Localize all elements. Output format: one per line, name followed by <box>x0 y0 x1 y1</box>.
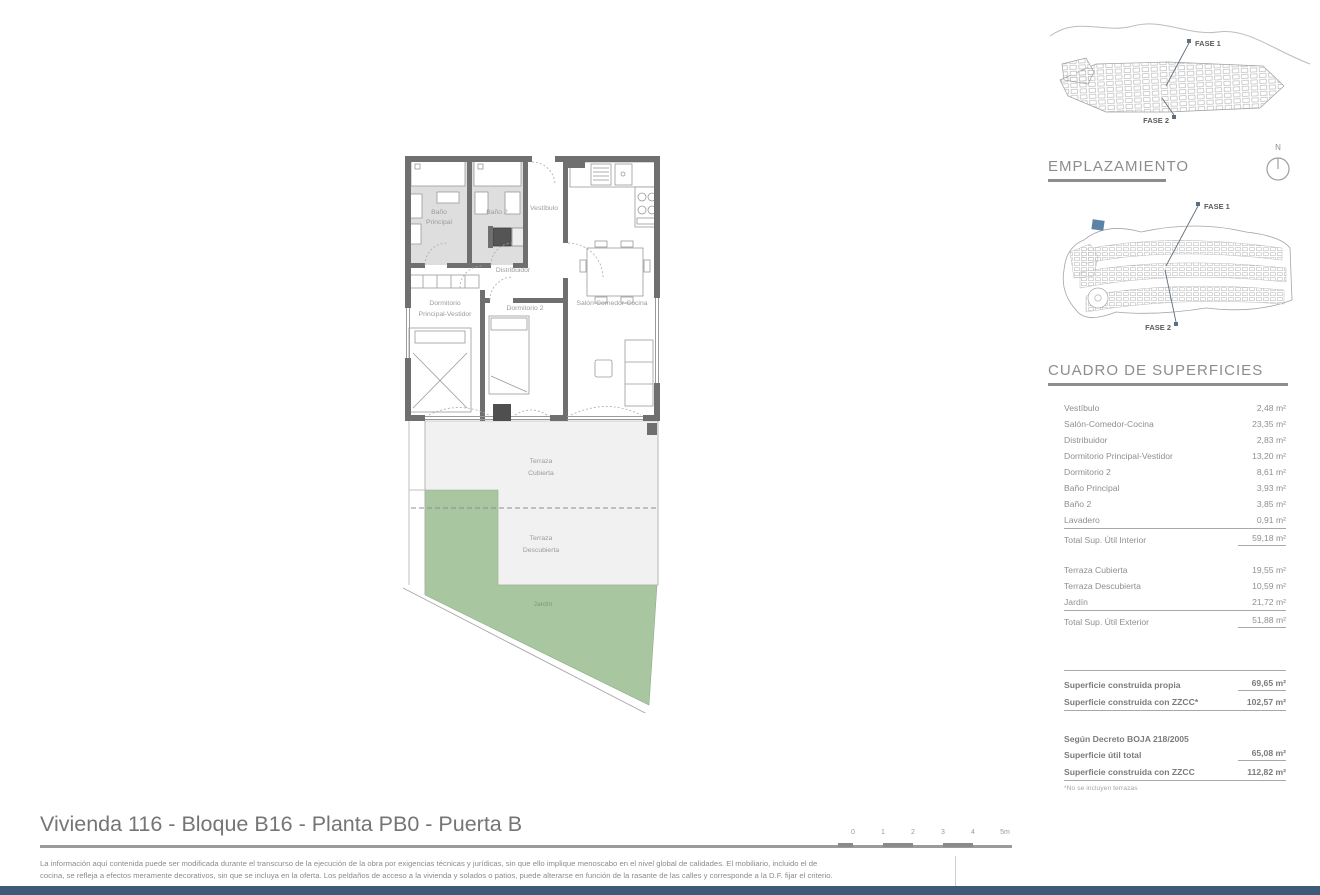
table-footnote: *No se incluyen terrazas <box>1064 785 1286 792</box>
fase1-label: FASE 1 <box>1195 39 1221 48</box>
svg-text:Descubierta: Descubierta <box>523 547 559 554</box>
room-label-distribuidor: Distribuidor <box>496 267 531 274</box>
emplazamiento-title: EMPLAZAMIENTO <box>1048 158 1189 175</box>
room-label-bano-principal: Baño <box>431 209 447 216</box>
scale-bar: 0 1 2 3 4 5m <box>823 829 1023 849</box>
table-row: Jardín21,72 m² <box>1064 592 1286 608</box>
room-label-dormitorio-principal: Dormitorio <box>429 300 461 307</box>
surfaces-table: Vestíbulo2,48 m² Salón-Comedor-Cocina23,… <box>1064 398 1286 792</box>
room-label-bano-2: Baño 2 <box>486 209 508 216</box>
exterior-total-row: Total Sup. Útil Exterior51,88 m² <box>1064 610 1286 628</box>
scale-tick: 4 <box>971 829 975 836</box>
scale-segment <box>838 843 853 847</box>
scale-segment <box>943 843 973 847</box>
scale-tick: 0 <box>851 829 855 836</box>
table-row: Baño Principal3,93 m² <box>1064 478 1286 494</box>
table-row: Superficie construida con ZZCC*102,57 m² <box>1064 691 1286 711</box>
table-row: Terraza Descubierta10,59 m² <box>1064 576 1286 592</box>
table-row: Superficie construida con ZZCC112,82 m² <box>1064 761 1286 781</box>
svg-text:Principal-Vestidor: Principal-Vestidor <box>419 311 473 318</box>
room-label-vestibulo: Vestíbulo <box>530 205 558 212</box>
fase2-label: FASE 2 <box>1143 116 1169 125</box>
floor-plan: Baño Principal Baño 2 Vestíbulo Distribu… <box>395 148 675 713</box>
legal-divider <box>955 856 956 886</box>
room-label-terraza-cubierta: Terraza <box>530 458 553 465</box>
plan-sheet: Baño Principal Baño 2 Vestíbulo Distribu… <box>0 0 1320 895</box>
site-plan: FASE 1 FASE 2 <box>1046 192 1306 352</box>
fase1-label: FASE 1 <box>1204 202 1230 211</box>
highlighted-block <box>1091 219 1104 231</box>
bottom-bar <box>0 886 1320 895</box>
table-row: Baño 23,85 m² <box>1064 494 1286 510</box>
fase2-label: FASE 2 <box>1145 323 1171 332</box>
room-label-salon: Salón-Comedor-Cocina <box>576 300 647 307</box>
room-label-jardin: Jardín <box>534 601 553 608</box>
emplazamiento-section: EMPLAZAMIENTO <box>1048 158 1189 182</box>
scale-tick: 5m <box>1000 829 1010 836</box>
room-label-terraza-descubierta: Terraza <box>530 535 553 542</box>
aerial-view-sketch: FASE 1 FASE 2 <box>1048 6 1312 136</box>
surfaces-section-header: CUADRO DE SUPERFICIES <box>1048 362 1288 386</box>
table-row: Distribuidor2,83 m² <box>1064 430 1286 446</box>
svg-text:Principal: Principal <box>426 219 453 226</box>
svg-text:Cubierta: Cubierta <box>528 470 554 477</box>
table-row: Dormitorio 28,61 m² <box>1064 462 1286 478</box>
coastline-sketch <box>1050 24 1310 64</box>
table-row: Superficie útil total65,08 m² <box>1064 744 1286 761</box>
table-row: Vestíbulo2,48 m² <box>1064 398 1286 414</box>
table-row: Superficie construida propia69,65 m² <box>1064 674 1286 691</box>
sheet-title: Vivienda 116 - Bloque B16 - Planta PB0 -… <box>40 812 522 837</box>
table-row: Salón-Comedor-Cocina23,35 m² <box>1064 414 1286 430</box>
building-band <box>1060 62 1284 112</box>
surfaces-title: CUADRO DE SUPERFICIES <box>1048 362 1288 379</box>
table-row: Terraza Cubierta19,55 m² <box>1064 560 1286 576</box>
scale-tick: 1 <box>881 829 885 836</box>
legal-line-2: cocina, se refleja a efectos meramente d… <box>40 870 952 882</box>
decree-block: Según Decreto BOJA 218/2005 Superficie ú… <box>1064 725 1286 792</box>
table-row: Dormitorio Principal-Vestidor13,20 m² <box>1064 446 1286 462</box>
built-surface-block: Superficie construida propia69,65 m² Sup… <box>1064 670 1286 711</box>
legal-line-1: La información aquí contenida puede ser … <box>40 858 952 870</box>
svg-text:N: N <box>1275 143 1281 152</box>
interior-total-row: Total Sup. Útil Interior59,18 m² <box>1064 528 1286 546</box>
room-label-dormitorio-2: Dormitorio 2 <box>506 305 543 312</box>
fixtures <box>409 160 658 412</box>
legal-disclaimer: La información aquí contenida puede ser … <box>40 858 952 882</box>
compass-icon: N <box>1260 140 1296 188</box>
emplazamiento-rule <box>1048 179 1166 182</box>
scale-tick: 3 <box>941 829 945 836</box>
surfaces-rule <box>1048 383 1288 386</box>
table-row: Lavadero0,91 m² <box>1064 510 1286 526</box>
decree-heading: Según Decreto BOJA 218/2005 <box>1064 725 1286 744</box>
scale-segment <box>883 843 913 847</box>
scale-tick: 2 <box>911 829 915 836</box>
